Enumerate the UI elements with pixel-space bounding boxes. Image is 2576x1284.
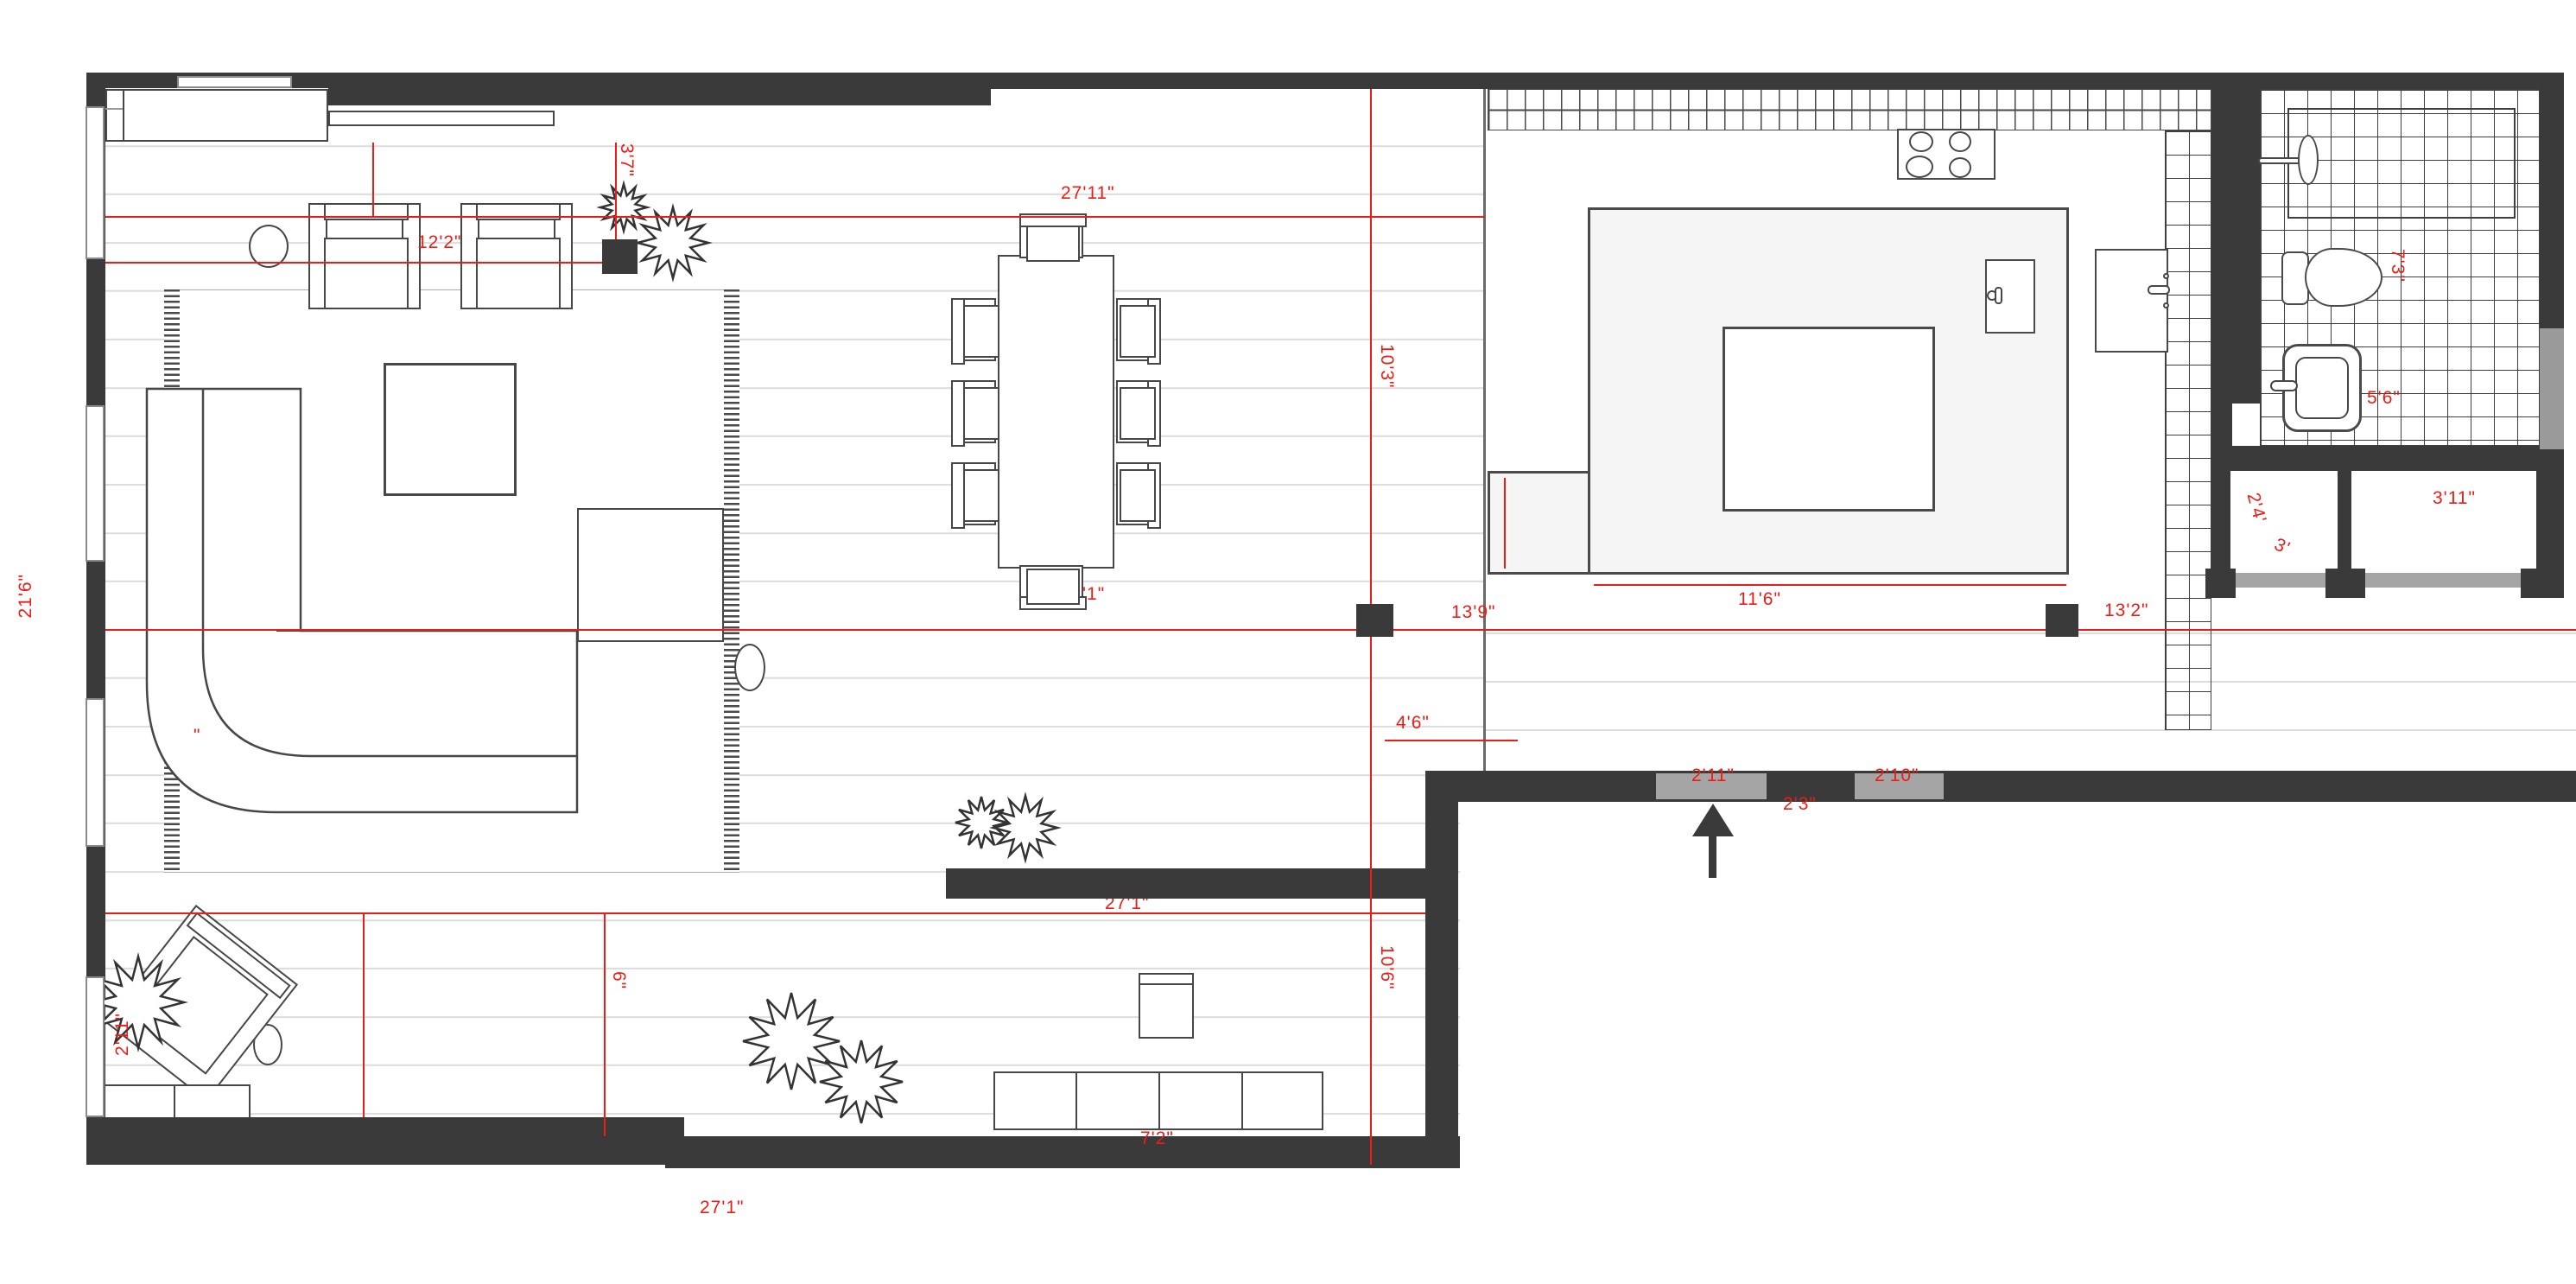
- dining-chair-left: [951, 380, 996, 443]
- armchair-seat-icon: [476, 238, 561, 309]
- chair-seat-icon: [1026, 569, 1080, 605]
- tv-console-divider: [1241, 1071, 1243, 1130]
- bath-door: [2540, 328, 2564, 449]
- dimension-label-hall-right: 13'2": [2104, 601, 2149, 621]
- fridge-handle-icon: [2148, 285, 2170, 295]
- dining-chair-right: [1116, 380, 1161, 443]
- kitchen-counter-opening: [1723, 327, 1935, 512]
- fridge-knob-icon: [2163, 302, 2169, 308]
- burner-icon: [1906, 156, 1933, 178]
- window: [86, 405, 105, 562]
- console-divider: [123, 89, 124, 142]
- wall-top-main: [328, 73, 991, 105]
- wall-kitchen-bottom: [1425, 771, 2576, 802]
- faucet-handle-icon: [1995, 287, 2002, 304]
- wall-bath-bottom: [2230, 446, 2564, 471]
- dining-table: [998, 255, 1114, 569]
- dining-chair-left: [951, 462, 996, 525]
- window: [86, 976, 105, 1117]
- kitchen-boundary-line: [1483, 89, 1486, 771]
- chair-seat-icon: [1120, 387, 1156, 440]
- dimension-label-living-width: 12'2": [417, 232, 462, 253]
- wall-middle: [946, 868, 1427, 899]
- dining-chair-right: [1116, 462, 1161, 525]
- wall-kitchen-bath-divider: [2211, 73, 2260, 404]
- burner-icon: [1949, 157, 1971, 178]
- marker-box-plants: [602, 239, 638, 274]
- rug-fringe-right: [724, 289, 739, 873]
- dim-line-27-11: [105, 216, 1485, 218]
- closet-pier: [2325, 569, 2365, 598]
- entrance-arrow-icon: [1692, 804, 1734, 836]
- armchair-right: [460, 203, 573, 306]
- chair-seat-icon: [1026, 226, 1080, 262]
- sink-faucet-icon: [2270, 380, 2298, 391]
- dimension-label-stray-quote: ": [194, 726, 200, 747]
- sectional-sofa: [147, 389, 579, 814]
- dimension-label-entry-window-2: 2'10": [1875, 766, 1919, 786]
- dim-line-lower-b: [604, 912, 606, 1136]
- closet-b-floor: [2351, 471, 2536, 570]
- plant-icon: [816, 1037, 906, 1127]
- kitchen-backsplash-top: [1488, 89, 2211, 130]
- refrigerator: [2095, 249, 2168, 353]
- armchair-back-icon: [324, 203, 409, 220]
- dimension-label-door-gap: 4'6": [1396, 713, 1430, 734]
- dimension-label-bath-sink: 5'6": [2367, 388, 2401, 409]
- bathroom-sink-basin: [2295, 357, 2349, 419]
- wall-shelf: [328, 111, 555, 126]
- dimension-label-island-width: 11'6": [1738, 589, 1781, 610]
- chair-seat-icon: [1120, 305, 1156, 358]
- closet-pier: [2521, 569, 2564, 598]
- armchair-back-icon: [476, 203, 561, 220]
- dimension-label-entry-offset: 2'3": [1783, 794, 1817, 815]
- floor-plan-canvas: 12'2"27'11"3'7"10'3"10'6"21'6"'1"13'9"11…: [0, 0, 2576, 1284]
- dimension-label-lower-line: 6": [608, 971, 629, 989]
- closet-pier: [2205, 569, 2236, 598]
- dining-chair-head-bottom: [1019, 565, 1083, 610]
- ottoman: [577, 508, 724, 642]
- dim-tick-island: [1504, 478, 1506, 569]
- dining-chair-right: [1116, 298, 1161, 361]
- fridge-knob-icon: [2163, 273, 2169, 279]
- outside-lower-right: [1460, 802, 2576, 1284]
- small-table-edge: [1139, 983, 1194, 985]
- marker-post-right: [2046, 604, 2078, 637]
- dimension-label-lower-left-corner: 2'11": [112, 1013, 133, 1056]
- dimension-label-hall-left: 13'9": [1451, 602, 1496, 623]
- dimension-label-plant-offset: 3'7": [616, 143, 637, 177]
- dim-line-lower-room: [105, 912, 1425, 914]
- armchair-seat-icon: [324, 238, 409, 309]
- kitchen-counter-extension: [1488, 471, 1591, 575]
- dim-tick-console: [372, 143, 374, 216]
- media-console: [105, 89, 328, 142]
- dimension-label-kitchen-col-upper: 10'3": [1376, 344, 1397, 389]
- dim-line-12-2: [105, 262, 605, 264]
- dim-line-4-6: [1385, 740, 1518, 741]
- window: [86, 698, 105, 847]
- burner-icon: [1949, 131, 1971, 152]
- dimension-label-entry-window-1: 2'11": [1691, 766, 1735, 786]
- burner-icon: [1909, 131, 1933, 152]
- window: [86, 106, 105, 259]
- dining-chair-left: [951, 298, 996, 361]
- dining-chair-head-top: [1019, 213, 1083, 258]
- wall-lower-room-right: [1425, 771, 1458, 1166]
- wall-top-right-thin: [991, 73, 2564, 89]
- dim-line-lower-a: [363, 912, 365, 1117]
- tv-console-divider: [1075, 1071, 1077, 1130]
- chair-seat-icon: [1120, 469, 1156, 522]
- side-table-round: [734, 644, 765, 691]
- wall-kitchen-bath-divider-lower: [2211, 404, 2232, 471]
- wood-floor-right: [1485, 596, 2576, 771]
- shower-head-icon: [2298, 135, 2319, 185]
- dimension-label-closet-b-width: 3'11": [2433, 488, 2476, 509]
- closet-window-sill: [2236, 573, 2325, 588]
- shower-enclosure: [2287, 108, 2516, 219]
- dimension-label-partial-table: '1": [1082, 584, 1105, 605]
- wall-bottom-right: [665, 1136, 1460, 1168]
- armchair-left: [308, 203, 421, 306]
- plant-icon: [990, 792, 1061, 863]
- dim-line-11-6: [1594, 584, 2066, 586]
- wall-niche: [177, 76, 292, 88]
- closet-window-sill: [2365, 573, 2521, 588]
- wall-bottom-left: [86, 1117, 684, 1165]
- marker-post-left: [1356, 604, 1393, 637]
- chair-seat-icon: [963, 305, 999, 358]
- chair-seat-icon: [963, 387, 999, 440]
- dimension-label-dining-span: 27'11": [1061, 183, 1115, 204]
- dimension-label-bath-height: 7'3": [2387, 249, 2408, 283]
- dimension-label-left-wall-height: 21'6": [16, 574, 36, 619]
- kitchen-backsplash-right: [2165, 130, 2211, 730]
- tv-console-divider: [1158, 1071, 1160, 1130]
- console-shelf-line: [105, 108, 123, 110]
- entrance-arrow-stem: [1709, 833, 1716, 878]
- dimension-label-console-width: 7'2": [1140, 1128, 1174, 1149]
- dimension-label-kitchen-col-lower: 10'6": [1376, 945, 1397, 990]
- dim-line-hall: [105, 629, 2576, 631]
- chair-seat-icon: [963, 469, 999, 522]
- dimension-label-bottom-span: 27'1": [700, 1198, 745, 1218]
